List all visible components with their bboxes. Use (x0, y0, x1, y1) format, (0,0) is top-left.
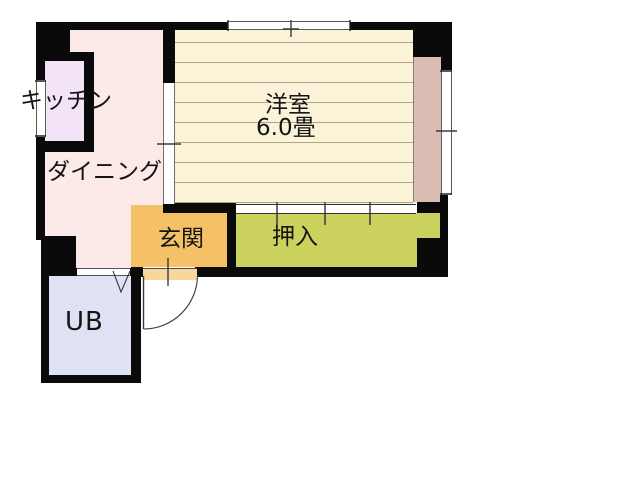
entrance-door-arc (144, 275, 198, 329)
floor-line (175, 82, 413, 83)
floor-line (175, 42, 413, 43)
wall-left-lower (41, 240, 49, 383)
entry-threshold (143, 268, 197, 280)
label-western-room: 洋室 (265, 94, 311, 117)
wall-corner-top-right (413, 22, 452, 57)
window-right (441, 70, 452, 195)
wall-top (36, 22, 413, 30)
floor-line (175, 142, 413, 143)
room-dining (70, 30, 163, 52)
wall-corner-bottom-right (417, 238, 448, 277)
label-unit-bath: UB (65, 309, 104, 335)
room-closet (236, 213, 417, 268)
wall-genkan-right (227, 203, 236, 277)
wall-balcony-bottom (417, 202, 440, 213)
floorplan-canvas: キッチン ダイニング 洋室 6.0畳 玄関 押入 UB (0, 0, 640, 480)
wall-bath-bottom (41, 375, 141, 383)
label-western-room-size: 6.0畳 (256, 117, 316, 140)
balcony-strip (413, 57, 443, 202)
sliding-door-closet (236, 204, 416, 214)
floor-line (175, 62, 413, 63)
label-genkan: 玄関 (158, 228, 204, 251)
label-kitchen: キッチン (20, 90, 112, 113)
floor-line (175, 162, 413, 163)
room-dining (44, 205, 131, 236)
wall-western-left (163, 28, 175, 83)
wall-genkan-top (163, 203, 236, 213)
wall-bath-right (131, 268, 141, 383)
wall-bottom (195, 267, 448, 277)
sliding-door-western (163, 83, 175, 204)
door-bath-opening (77, 268, 130, 276)
label-closet: 押入 (272, 226, 318, 249)
wall-genkan-bottom-stub (131, 267, 143, 277)
label-dining: ダイニング (47, 161, 162, 184)
room-closet (417, 212, 440, 238)
window-top (228, 21, 350, 30)
floor-line (175, 182, 413, 183)
wall-kitchen-bottom (36, 141, 94, 152)
room-dining (76, 236, 133, 268)
